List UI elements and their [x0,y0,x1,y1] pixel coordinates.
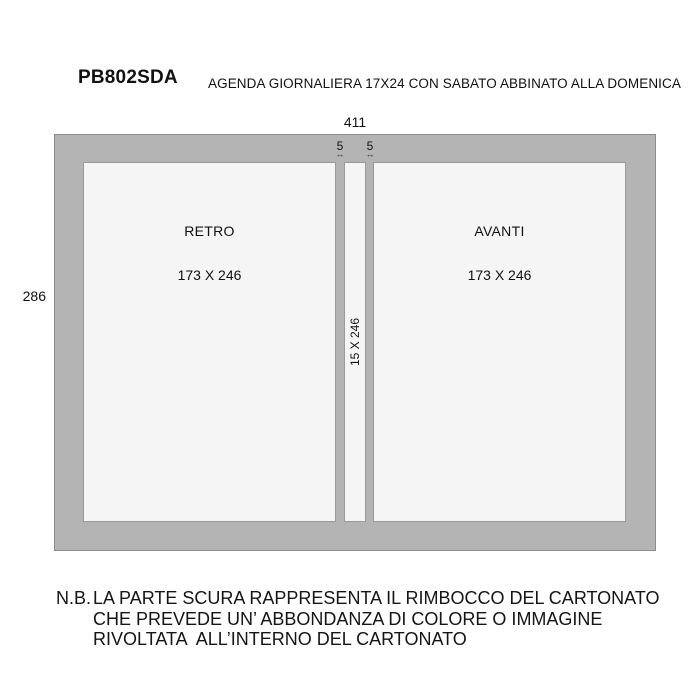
back-cover-panel: RETRO 173 X 246 [83,162,336,522]
note-line: CHE PREVEDE UN’ ABBONDANZA DI COLORE O I… [93,609,659,630]
note-prefix: N.B. [56,588,91,609]
front-cover-panel: AVANTI 173 X 246 [373,162,626,522]
overall-width-label: 411 [54,114,656,130]
note-lines: LA PARTE SCURA RAPPRESENTA IL RIMBOCCO D… [93,588,659,650]
front-cover-size: 173 X 246 [374,267,625,283]
spine-panel: 15 X 246 [344,162,366,522]
note-line: LA PARTE SCURA RAPPRESENTA IL RIMBOCCO D… [93,588,659,609]
width-arrow-icon: ↔ [336,150,345,159]
width-arrow-icon: ↔ [366,150,375,159]
overall-height-label: 286 [6,288,46,304]
note: N.B. LA PARTE SCURA RAPPRESENTA IL RIMBO… [56,588,660,650]
product-title: AGENDA GIORNALIERA 17X24 CON SABATO ABBI… [208,76,681,91]
gap-right-dimension: 5 ↔ [359,140,381,159]
product-code: PB802SDA [78,67,178,89]
back-cover-size: 173 X 246 [84,267,335,283]
front-cover-label: AVANTI [374,223,625,239]
spec-sheet: PB802SDA AGENDA GIORNALIERA 17X24 CON SA… [0,0,700,700]
spine-size: 15 X 246 [348,318,362,366]
note-line: RIVOLTATA ALL’INTERNO DEL CARTONATO [93,629,659,650]
gap-left-dimension: 5 ↔ [329,140,351,159]
back-cover-label: RETRO [84,223,335,239]
